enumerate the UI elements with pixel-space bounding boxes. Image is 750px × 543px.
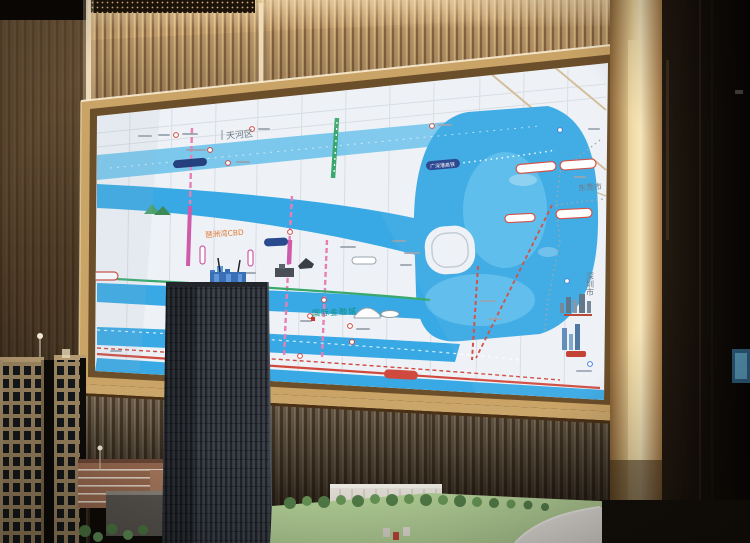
photo-vignette — [0, 0, 750, 543]
showroom-photo: 广深港高铁 — [0, 0, 750, 543]
